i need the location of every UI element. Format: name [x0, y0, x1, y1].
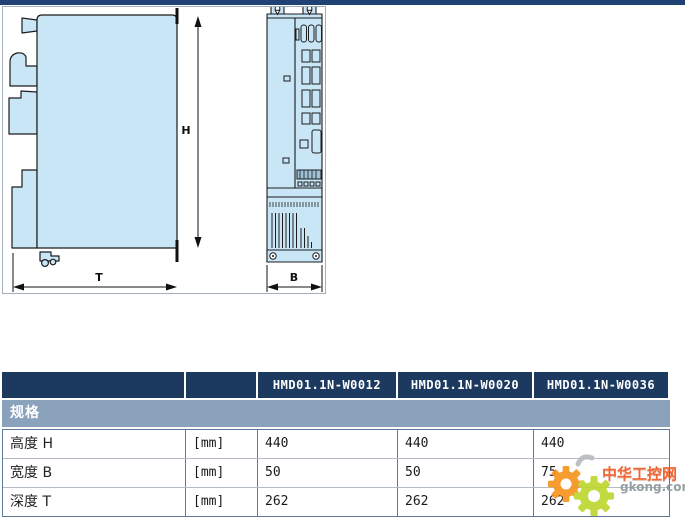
table-row: 深度 T [mm] 262 262 262 — [3, 487, 669, 516]
table-header-row: HMD01.1N-W0012 HMD01.1N-W0020 HMD01.1N-W… — [2, 372, 670, 398]
value-cell: 262 — [397, 488, 533, 516]
header-model-cell: HMD01.1N-W0020 — [396, 372, 532, 398]
table-body: 高度 H [mm] 440 440 440 宽度 B [mm] 50 50 75… — [2, 429, 670, 517]
t-dimension-label: T — [95, 271, 103, 284]
connector-block — [302, 67, 310, 84]
value-cell: 50 — [257, 459, 397, 487]
connector-block — [302, 113, 310, 124]
unit-cell: [mm] — [185, 488, 257, 516]
button-square — [300, 140, 308, 148]
t-arrow-left — [13, 284, 24, 291]
value-cell: 440 — [533, 430, 669, 458]
table-row: 宽度 B [mm] 50 50 75 — [3, 458, 669, 487]
unit-cell: [mm] — [185, 459, 257, 487]
b-arrow-right — [311, 284, 322, 291]
header-model-cell: HMD01.1N-W0036 — [532, 372, 668, 398]
terminal-pin — [316, 182, 320, 186]
connector-block — [302, 90, 310, 107]
connector-block — [312, 90, 320, 107]
side-view-tab — [9, 91, 37, 134]
terminal-pin — [304, 182, 308, 186]
table-row: 高度 H [mm] 440 440 440 — [3, 430, 669, 458]
spec-label-cell: 深度 T — [3, 488, 185, 516]
h-arrow-up — [195, 16, 202, 27]
terminal-pin — [310, 182, 314, 186]
spec-label-cell: 宽度 B — [3, 459, 185, 487]
side-view-foot-roller — [50, 259, 56, 265]
b-arrow-left — [267, 284, 278, 291]
value-cell: 440 — [397, 430, 533, 458]
value-cell: 75 — [533, 459, 669, 487]
value-cell: 50 — [397, 459, 533, 487]
terminal-pin — [298, 182, 302, 186]
connector-pill — [316, 25, 322, 42]
witness-tick-top — [176, 8, 179, 24]
section-header: 规格 — [2, 400, 670, 427]
value-cell: 262 — [533, 488, 669, 516]
side-view-body — [37, 15, 177, 248]
dimension-drawing-panel: H T — [2, 6, 326, 294]
connector-block — [312, 67, 320, 84]
value-cell: 262 — [257, 488, 397, 516]
connector-tall — [312, 130, 321, 153]
connector-pill — [301, 25, 307, 42]
value-cell: 440 — [257, 430, 397, 458]
side-view-foot-roller — [42, 260, 49, 267]
dimension-drawing: H T — [3, 7, 325, 293]
header-model-cell: HMD01.1N-W0012 — [256, 372, 396, 398]
spec-label-cell: 高度 H — [3, 430, 185, 458]
b-dimension-label: B — [290, 271, 298, 284]
connector-block — [302, 50, 310, 62]
top-border-bar — [0, 0, 685, 5]
h-arrow-down — [195, 237, 202, 248]
spec-table: HMD01.1N-W0012 HMD01.1N-W0020 HMD01.1N-W… — [2, 372, 670, 517]
terminal-strip — [297, 170, 321, 179]
connector-block — [312, 113, 320, 124]
side-view-tab — [22, 18, 37, 33]
side-view-tab — [10, 53, 37, 86]
header-empty-unit-cell — [184, 372, 256, 398]
button-square-left — [284, 76, 290, 81]
unit-cell: [mm] — [185, 430, 257, 458]
connector-pill — [309, 25, 315, 42]
side-view-tab — [12, 170, 37, 248]
button-square-left — [283, 158, 289, 163]
connector-slot — [296, 29, 299, 40]
header-empty-cell — [2, 372, 184, 398]
h-dimension-label: H — [181, 124, 190, 137]
witness-tick-bottom — [176, 240, 179, 262]
connector-block — [312, 50, 320, 62]
t-arrow-right — [166, 284, 177, 291]
